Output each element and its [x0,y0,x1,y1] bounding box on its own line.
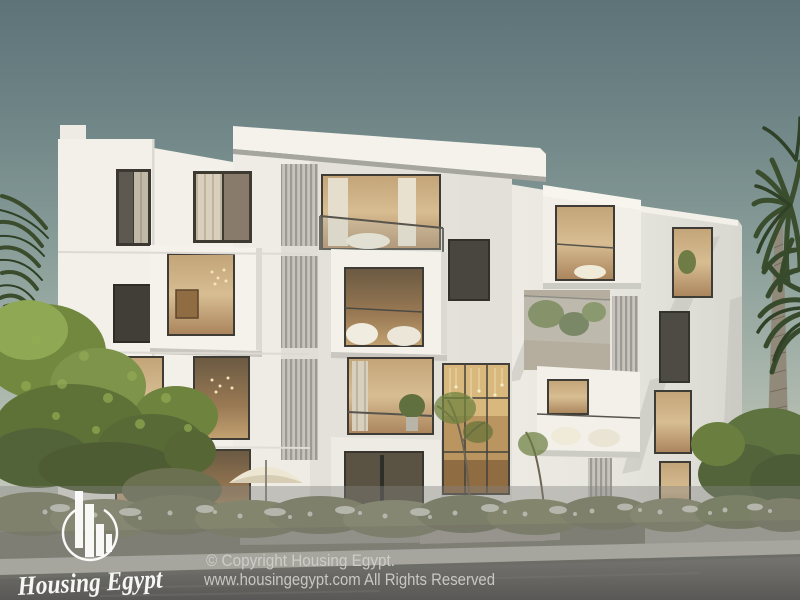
svg-text:www.housingegypt.com All Right: www.housingegypt.com All Rights Reserved [203,571,495,589]
svg-text:© Copyright Housing Egypt.: © Copyright Housing Egypt. [206,552,395,570]
